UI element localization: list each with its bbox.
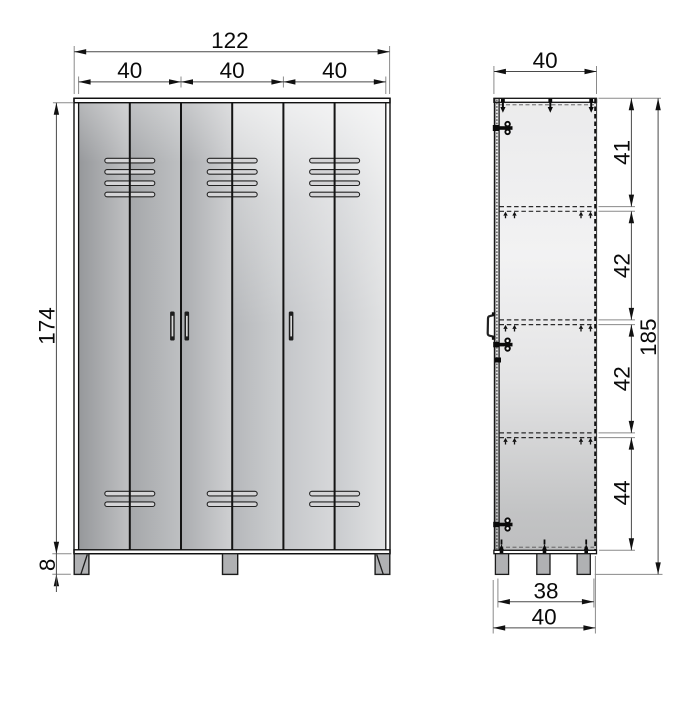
svg-text:174: 174 (34, 307, 59, 345)
svg-text:122: 122 (211, 28, 249, 53)
svg-text:40: 40 (532, 605, 557, 630)
svg-text:41: 41 (609, 140, 634, 165)
svg-text:40: 40 (117, 58, 142, 83)
svg-text:42: 42 (609, 253, 634, 278)
svg-text:40: 40 (322, 58, 347, 83)
svg-text:185: 185 (636, 318, 661, 356)
svg-text:40: 40 (533, 48, 558, 73)
svg-text:40: 40 (220, 58, 245, 83)
svg-text:44: 44 (609, 480, 634, 505)
svg-text:38: 38 (533, 578, 558, 603)
svg-text:42: 42 (609, 366, 634, 391)
svg-text:8: 8 (35, 559, 60, 572)
